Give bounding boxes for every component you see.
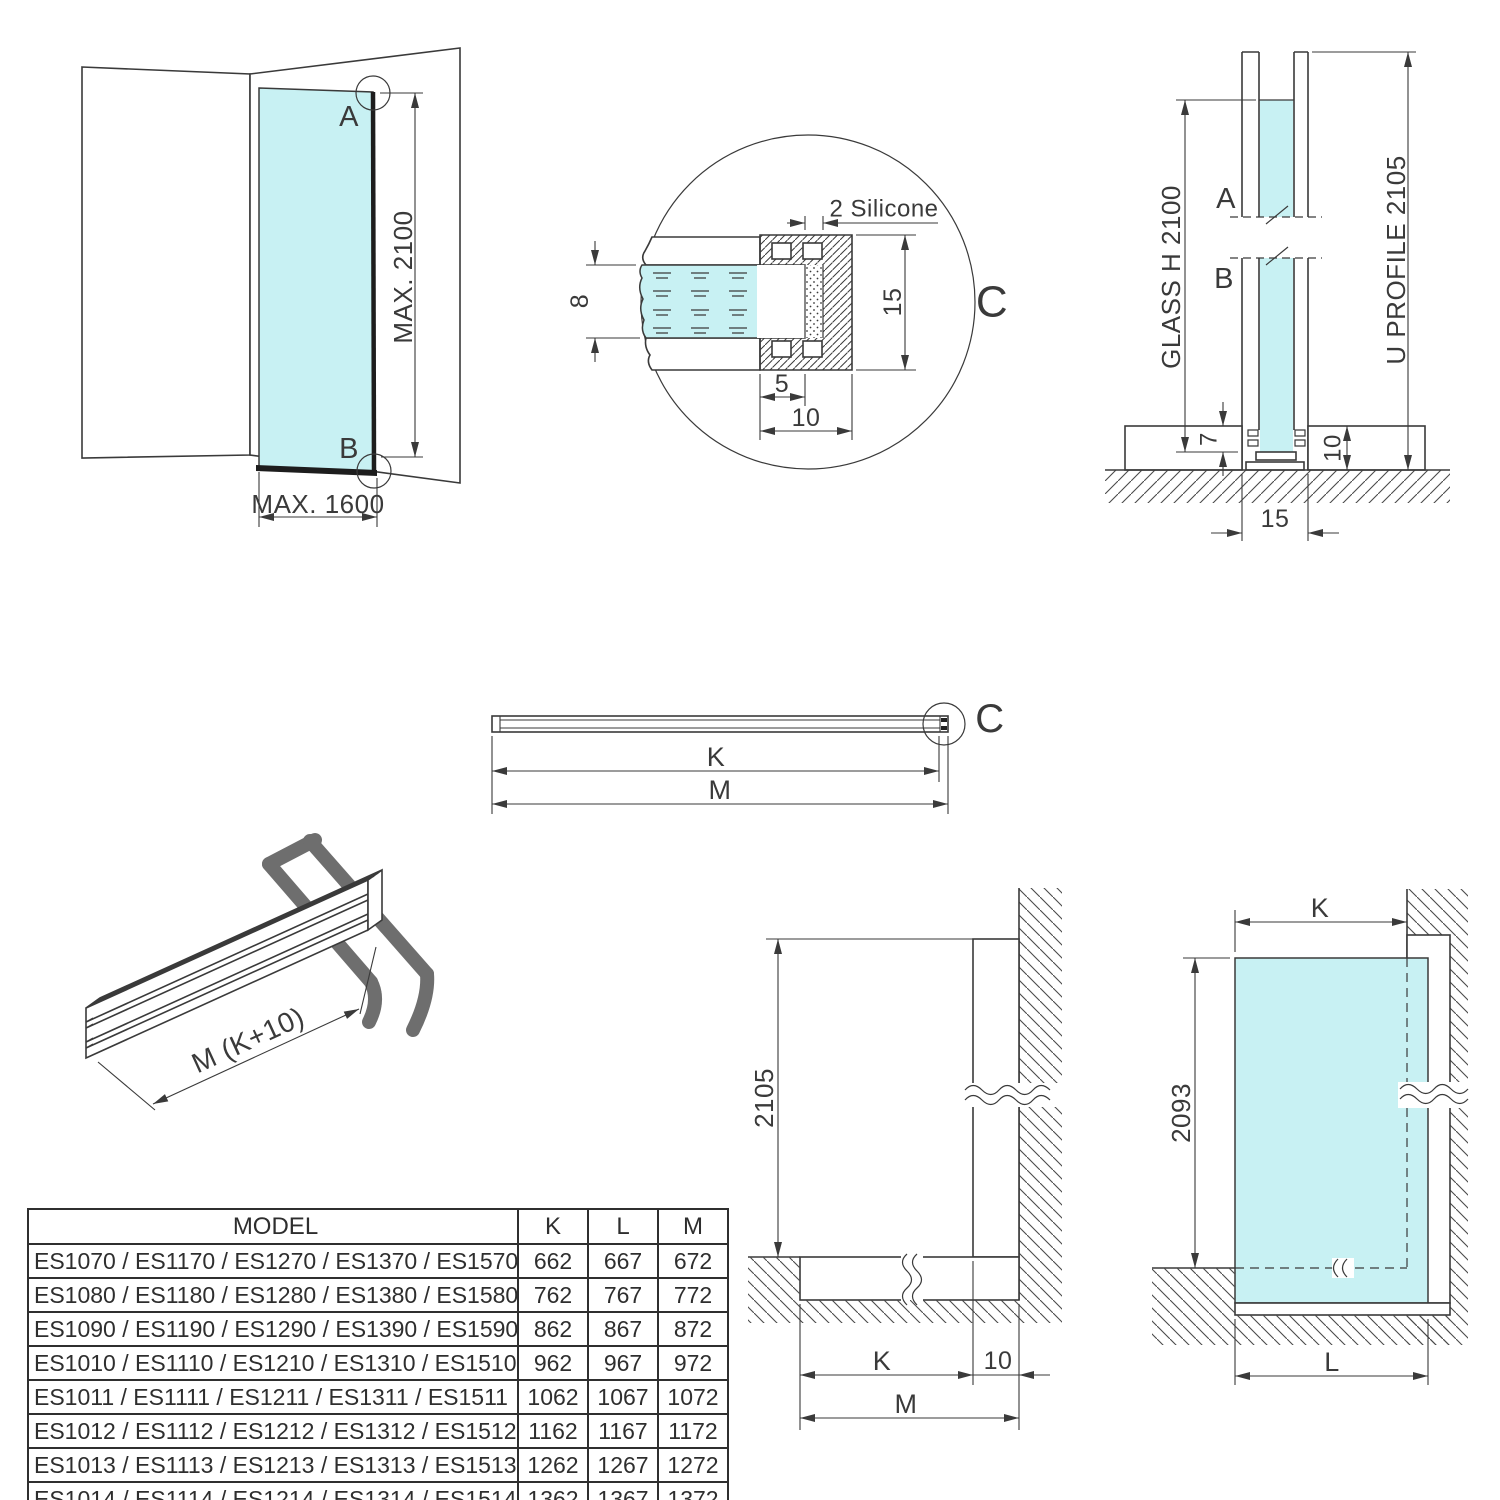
l-cell: 767 [588, 1278, 658, 1312]
header-k: K [518, 1209, 588, 1244]
dim-k: K [1235, 893, 1407, 952]
label-c: C [975, 697, 1004, 741]
screw-channel [803, 341, 822, 357]
model-cell: ES1090 / ES1190 / ES1290 / ES1390 / ES15… [28, 1312, 518, 1346]
model-cell: ES1013 / ES1113 / ES1213 / ES1313 / ES15… [28, 1448, 518, 1482]
bar-end-detail [941, 726, 947, 730]
view-iso-profile: M (K+10) [86, 840, 427, 1110]
table-row: ES1012 / ES1112 / ES1212 / ES1312 / ES15… [28, 1414, 728, 1448]
bar-end-detail [941, 718, 947, 722]
base-plate [1246, 462, 1304, 470]
dim-10: 10 [760, 374, 852, 440]
wall-profile-edge [373, 92, 374, 471]
k-cell: 762 [518, 1278, 588, 1312]
svg-text:8: 8 [566, 294, 594, 308]
glass-panel [1235, 958, 1428, 1303]
header-model: MODEL [28, 1209, 518, 1244]
model-dimension-table: MODEL K L M ES1070 / ES1170 / ES1270 / E… [27, 1208, 729, 1500]
svg-text:2 Silicone: 2 Silicone [829, 196, 938, 223]
svg-text:15: 15 [879, 288, 907, 317]
m-cell: 1372 [658, 1482, 728, 1500]
l-cell: 1267 [588, 1448, 658, 1482]
screw-channel [772, 341, 791, 357]
model-cell: ES1012 / ES1112 / ES1212 / ES1312 / ES15… [28, 1414, 518, 1448]
model-cell: ES1070 / ES1170 / ES1270 / ES1370 / ES15… [28, 1244, 518, 1278]
l-cell: 1167 [588, 1414, 658, 1448]
svg-text:10: 10 [1320, 434, 1347, 462]
table-row: ES1011 / ES1111 / ES1211 / ES1311 / ES15… [28, 1380, 728, 1414]
view-elev-profile: 2105 K 10 M [748, 888, 1063, 1430]
svg-text:K: K [1311, 893, 1330, 923]
table-row: ES1090 / ES1190 / ES1290 / ES1390 / ES15… [28, 1312, 728, 1346]
svg-text:5: 5 [775, 370, 789, 398]
table-row: ES1014 / ES1114 / ES1214 / ES1314 / ES15… [28, 1482, 728, 1500]
k-cell: 1362 [518, 1482, 588, 1500]
technical-drawing-sheet: A B MAX. 2100 MAX. 1600 C 2 Silicone 8 [0, 0, 1500, 1500]
l-cell: 867 [588, 1312, 658, 1346]
svg-text:GLASS H 2100: GLASS H 2100 [1156, 185, 1186, 369]
model-cell: ES1011 / ES1111 / ES1211 / ES1311 / ES15… [28, 1380, 518, 1414]
lower-band [646, 338, 761, 370]
l-cell: 1367 [588, 1482, 658, 1500]
view-detail-c: C 2 Silicone 8 15 5 10 [566, 135, 1008, 469]
label-b: B [1214, 263, 1234, 295]
svg-text:2105: 2105 [749, 1068, 779, 1128]
table-header-row: MODEL K L M [28, 1209, 728, 1244]
floor-plate-left [1125, 426, 1242, 470]
bottom-profile-strip [1235, 1303, 1450, 1315]
m-cell: 1072 [658, 1380, 728, 1414]
table-row: ES1070 / ES1170 / ES1270 / ES1370 / ES15… [28, 1244, 728, 1278]
svg-text:L: L [1324, 1347, 1340, 1377]
glass-panel [259, 88, 375, 473]
setting-block [1256, 452, 1296, 460]
dim-2105: 2105 [749, 939, 973, 1257]
m-cell: 872 [658, 1312, 728, 1346]
dim-15: 15 [856, 235, 916, 370]
dim-glass-8: 8 [566, 241, 640, 362]
svg-text:M: M [709, 775, 732, 805]
svg-text:15: 15 [1261, 505, 1290, 533]
label-b: B [339, 433, 359, 465]
label-c: C [976, 278, 1008, 327]
svg-text:MAX. 2100: MAX. 2100 [388, 210, 418, 343]
glass-lower [1260, 258, 1293, 452]
table-row: ES1010 / ES1110 / ES1210 / ES1310 / ES15… [28, 1346, 728, 1380]
k-cell: 862 [518, 1312, 588, 1346]
header-l: L [588, 1209, 658, 1244]
table-row: ES1080 / ES1180 / ES1280 / ES1380 / ES15… [28, 1278, 728, 1312]
label-a: A [1216, 183, 1236, 215]
left-wall [82, 67, 250, 458]
k-cell: 1062 [518, 1380, 588, 1414]
svg-text:K: K [873, 1346, 892, 1376]
svg-text:MAX. 1600: MAX. 1600 [251, 489, 384, 519]
view-elev-glass: 2093 K L [1152, 889, 1468, 1385]
ground-hatch [1152, 1268, 1235, 1345]
svg-text:U PROFILE 2105: U PROFILE 2105 [1381, 155, 1411, 364]
dim-2093: 2093 [1166, 958, 1230, 1268]
model-cell: ES1080 / ES1180 / ES1280 / ES1380 / ES15… [28, 1278, 518, 1312]
view-bar: C K M [492, 697, 1005, 814]
k-cell: 662 [518, 1244, 588, 1278]
glass-slot [757, 265, 805, 338]
svg-text:2093: 2093 [1166, 1083, 1196, 1143]
screw-channel [803, 243, 822, 259]
k-cell: 1262 [518, 1448, 588, 1482]
m-cell: 1272 [658, 1448, 728, 1482]
dim-u-profile: U PROFILE 2105 [1312, 52, 1416, 470]
bar-outline [492, 716, 948, 732]
dim-max-width: MAX. 1600 [251, 472, 384, 527]
glass-upper [1260, 100, 1293, 217]
l-cell: 967 [588, 1346, 658, 1380]
view-corner-perspective: A B MAX. 2100 MAX. 1600 [82, 48, 460, 527]
table-row: ES1013 / ES1113 / ES1213 / ES1313 / ES15… [28, 1448, 728, 1482]
ground-hatch [1235, 1315, 1450, 1345]
ground-hatch [748, 1257, 800, 1323]
m-cell: 1172 [658, 1414, 728, 1448]
label-a: A [339, 101, 359, 133]
view-section: A B GLASS H 2100 U PROFILE 2105 7 10 15 [1105, 52, 1450, 541]
dim-silicone: 2 Silicone [787, 196, 939, 231]
svg-text:M: M [895, 1389, 918, 1419]
silicone-stipple [805, 265, 823, 338]
svg-text:K: K [707, 742, 726, 772]
profile-end-cap [368, 870, 382, 930]
k-cell: 962 [518, 1346, 588, 1380]
header-m: M [658, 1209, 728, 1244]
m-cell: 772 [658, 1278, 728, 1312]
profile-front-face [86, 880, 368, 1058]
model-cell: ES1014 / ES1114 / ES1214 / ES1314 / ES15… [28, 1482, 518, 1500]
l-cell: 1067 [588, 1380, 658, 1414]
screw-channel [772, 243, 791, 259]
ground-hatch [1105, 470, 1450, 503]
m-cell: 672 [658, 1244, 728, 1278]
ground-hatch [800, 1300, 1019, 1323]
k-cell: 1162 [518, 1414, 588, 1448]
m-cell: 972 [658, 1346, 728, 1380]
upper-band [643, 237, 760, 265]
svg-text:10: 10 [984, 1347, 1013, 1375]
dim-glass-height: GLASS H 2100 [1156, 100, 1256, 452]
l-cell: 667 [588, 1244, 658, 1278]
model-cell: ES1010 / ES1110 / ES1210 / ES1310 / ES15… [28, 1346, 518, 1380]
svg-text:7: 7 [1196, 432, 1223, 446]
svg-text:10: 10 [792, 404, 821, 432]
